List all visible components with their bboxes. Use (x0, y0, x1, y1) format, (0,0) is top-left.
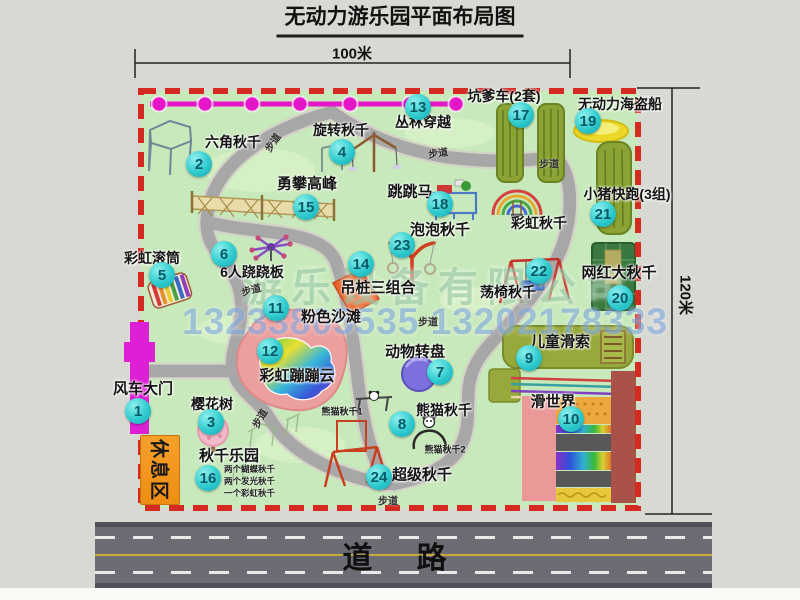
badge-19: 19 (575, 108, 601, 134)
trail-label: 步道 (427, 143, 449, 161)
badge-5: 5 (149, 262, 175, 288)
badge-20: 20 (607, 285, 633, 311)
badge-14: 14 (348, 251, 374, 277)
badge-16: 16 (195, 465, 221, 491)
label-climbing-peak: 勇攀高峰 (277, 173, 337, 194)
badge-6: 6 (211, 241, 237, 267)
bottom-margin (0, 588, 800, 600)
rest-area-label: 休息区 (147, 438, 174, 501)
badge-12: 12 (257, 338, 283, 364)
badge-23: 23 (389, 232, 415, 258)
swing-park-note-1: 两个蝴蝶秋千 (224, 463, 275, 475)
road: 道 路 (95, 522, 712, 588)
label-piggy-run: 小猪快跑(3组) (583, 184, 670, 204)
swing-park-note-2: 两个发光秋千 (224, 475, 275, 487)
badge-17: 17 (508, 102, 534, 128)
park-layout-plan: 游乐设备有限公司 13233805535 13202178333 无动力游乐园平… (0, 0, 800, 600)
width-dimension-label: 100米 (332, 43, 372, 64)
badge-7: 7 (427, 359, 453, 385)
badge-13: 13 (405, 94, 431, 120)
rest-area: 休息区 (140, 435, 180, 505)
label-kengdie-car: 坑爹车(2套) (467, 86, 540, 106)
badge-24: 24 (366, 464, 392, 490)
badge-3: 3 (198, 409, 224, 435)
badge-1: 1 (125, 398, 151, 424)
road-label: 道 路 (342, 533, 464, 577)
label-kids-zipline: 儿童滑索 (530, 331, 590, 352)
trail-label: 步道 (378, 493, 398, 508)
label-rotating-swing: 旋转秋千 (313, 120, 369, 140)
label-big-swing: 网红大秋千 (581, 262, 656, 283)
label-panda-swing-2: 熊猫秋千2 (424, 443, 465, 456)
trail-label: 步道 (539, 156, 559, 171)
label-swing-chair: 荡椅秋千 (480, 282, 536, 302)
badge-10: 10 (558, 406, 584, 432)
trail-label: 步道 (418, 314, 438, 329)
label-panda-swing: 熊猫秋千 (416, 400, 472, 420)
label-rainbow-bounce-cloud: 彩虹蹦蹦云 (259, 365, 334, 386)
label-super-swing: 超级秋千 (392, 464, 452, 485)
label-pink-beach: 粉色沙滩 (301, 306, 361, 327)
swing-park-note-3: 一个彩虹秋千 (224, 487, 275, 499)
label-animal-carousel: 动物转盘 (385, 341, 445, 362)
height-dimension-label: 120米 (676, 275, 697, 315)
badge-22: 22 (526, 258, 552, 284)
badge-9: 9 (516, 345, 542, 371)
badge-11: 11 (263, 295, 289, 321)
label-hexagon-swing: 六角秋千 (205, 132, 261, 152)
badge-4: 4 (329, 139, 355, 165)
page-title: 无动力游乐园平面布局图 (277, 1, 524, 38)
badge-18: 18 (427, 191, 453, 217)
label-bubble-swing: 泡泡秋千 (410, 219, 470, 240)
badge-8: 8 (389, 411, 415, 437)
badge-21: 21 (590, 201, 616, 227)
badge-15: 15 (293, 194, 319, 220)
label-jumping-horse: 跳跳马 (387, 181, 432, 202)
label-hanging-piles-combo: 吊桩三组合 (340, 277, 415, 298)
badge-2: 2 (186, 151, 212, 177)
label-windmill-gate: 风车大门 (113, 378, 173, 399)
label-panda-swing-1: 熊猫秋千1 (321, 405, 362, 418)
label-rainbow-swing: 彩虹秋千 (511, 213, 567, 233)
